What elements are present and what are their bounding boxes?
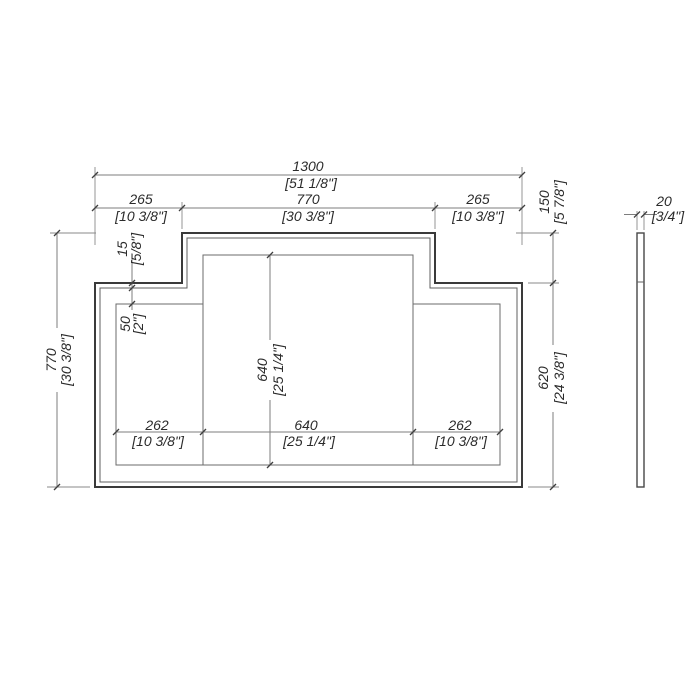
dim-top-right-in: [10 3/8"] — [451, 208, 505, 224]
dim-overall-width-mm: 1300 — [292, 158, 323, 174]
dim-panel-inset-in: [2"] — [130, 313, 146, 336]
side-profile-outline — [637, 233, 644, 487]
dim-side-height-mm: 620 — [535, 366, 551, 390]
side-view — [637, 233, 644, 487]
dim-frame-offset-in: [5/8"] — [128, 232, 144, 266]
dim-step-height-mm: 150 — [536, 190, 552, 214]
dim-right-panel-width-in: [10 3/8"] — [434, 433, 488, 449]
dim-thickness-in: [3/4"] — [651, 208, 685, 224]
dim-right-panel-width-mm: 262 — [447, 417, 472, 433]
dim-top-center-in: [30 3/8"] — [281, 208, 335, 224]
dim-overall-width-in: [51 1/8"] — [284, 175, 338, 191]
technical-drawing: 1300 [51 1/8"] 265 [10 3/8"] 770 [30 3/8… — [0, 0, 700, 700]
dim-overall-height-in: [30 3/8"] — [58, 333, 74, 387]
dim-overall-height-mm: 770 — [43, 348, 59, 372]
dim-step-height-in: [5 7/8"] — [551, 179, 567, 225]
dim-top-center-mm: 770 — [296, 191, 320, 207]
dim-center-panel-height-in: [25 1/4"] — [270, 343, 286, 397]
dim-top-right-mm: 265 — [465, 191, 490, 207]
dim-center-panel-width-in: [25 1/4"] — [282, 433, 336, 449]
dim-side-height-in: [24 3/8"] — [551, 351, 567, 405]
dim-center-panel-width-mm: 640 — [294, 417, 318, 433]
dim-center-panel-height-mm: 640 — [254, 358, 270, 382]
dim-left-panel-width-mm: 262 — [144, 417, 169, 433]
dim-top-left-in: [10 3/8"] — [114, 208, 168, 224]
dim-top-left-mm: 265 — [128, 191, 153, 207]
dim-left-panel-width-in: [10 3/8"] — [131, 433, 185, 449]
drawing-canvas: 1300 [51 1/8"] 265 [10 3/8"] 770 [30 3/8… — [0, 0, 700, 700]
dim-thickness-mm: 20 — [655, 193, 672, 209]
